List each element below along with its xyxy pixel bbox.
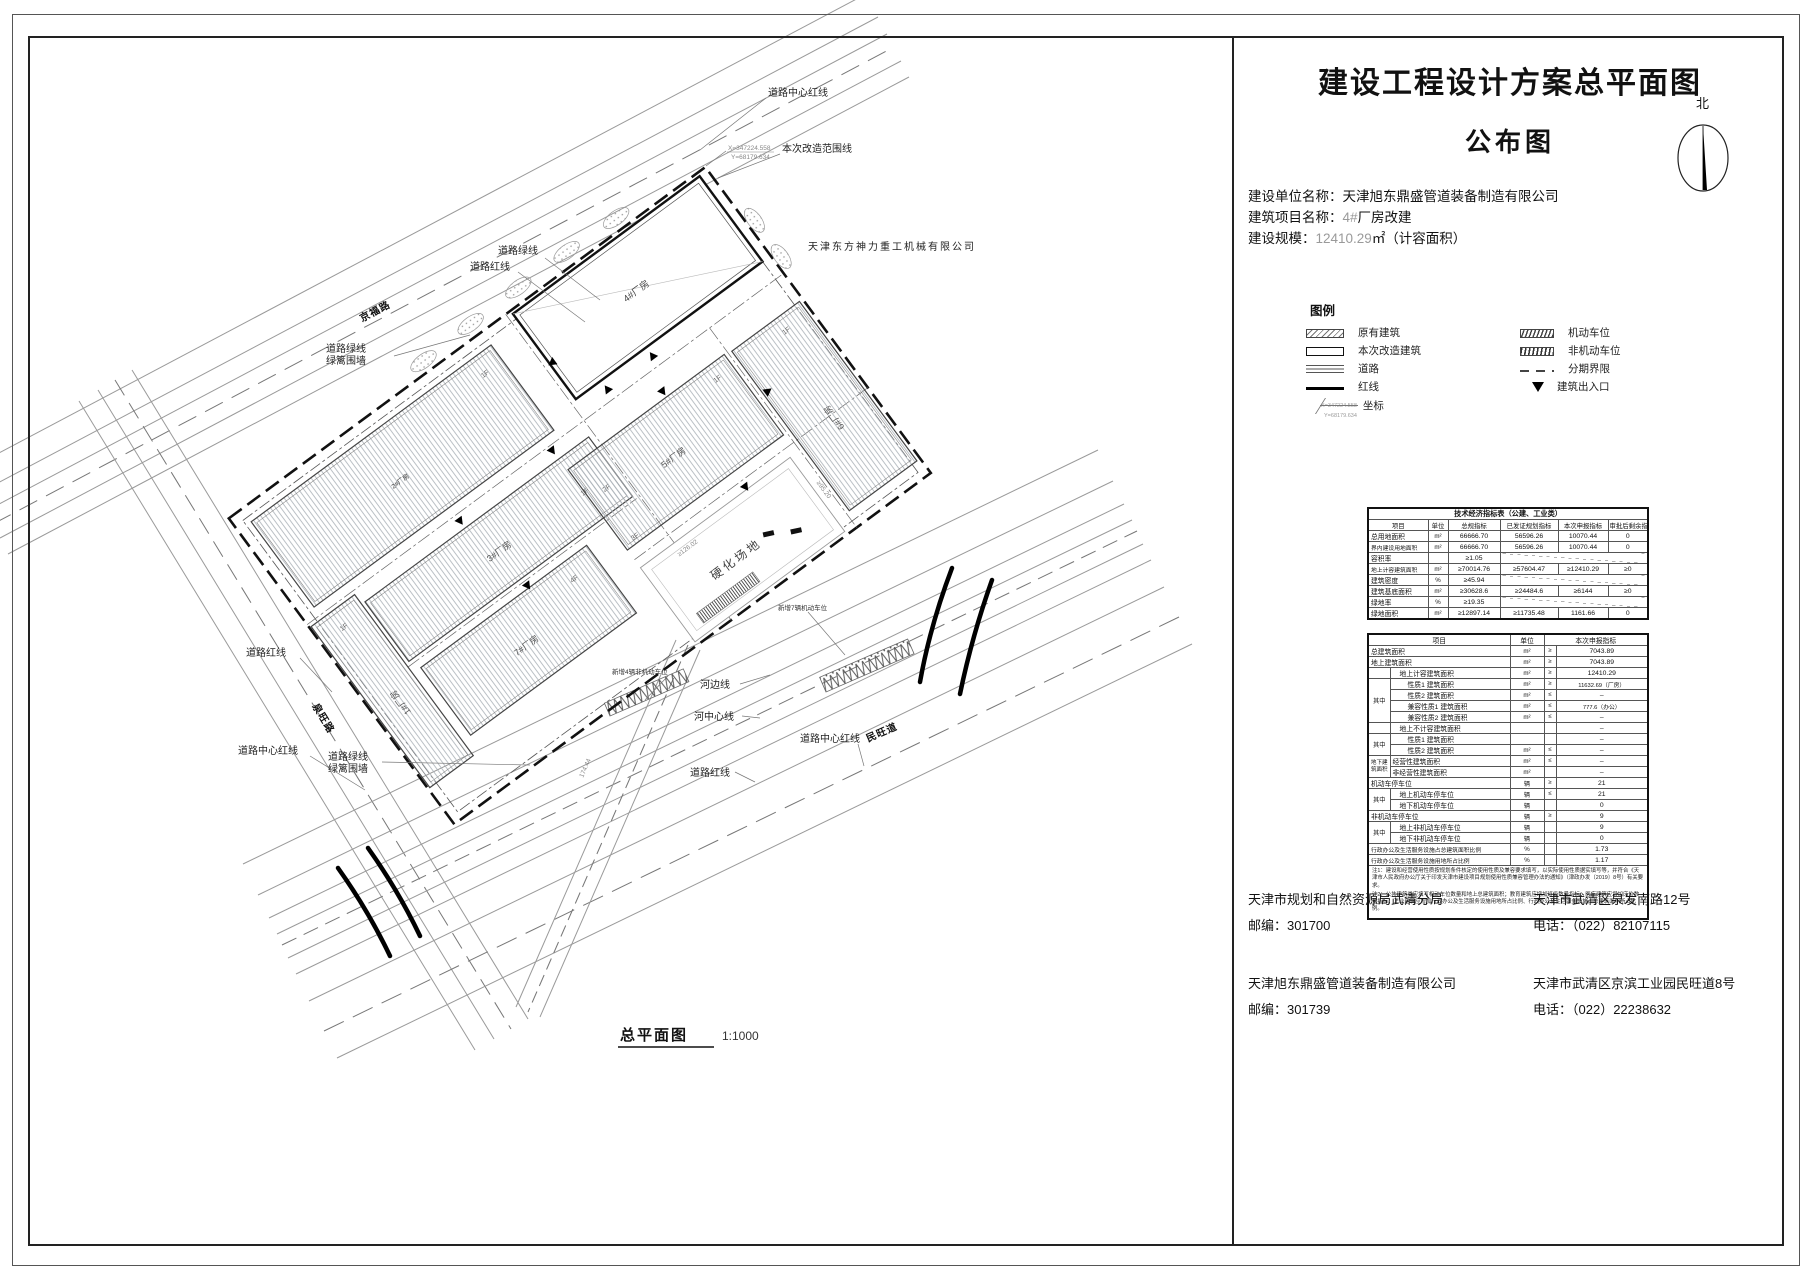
drawing-sheet: 2#厂房 1F 3#厂房 1F 2F 1#厂房 1F [0,0,1812,1280]
panel-divider [1232,36,1234,1246]
sheet-inner-border [28,36,1784,1246]
